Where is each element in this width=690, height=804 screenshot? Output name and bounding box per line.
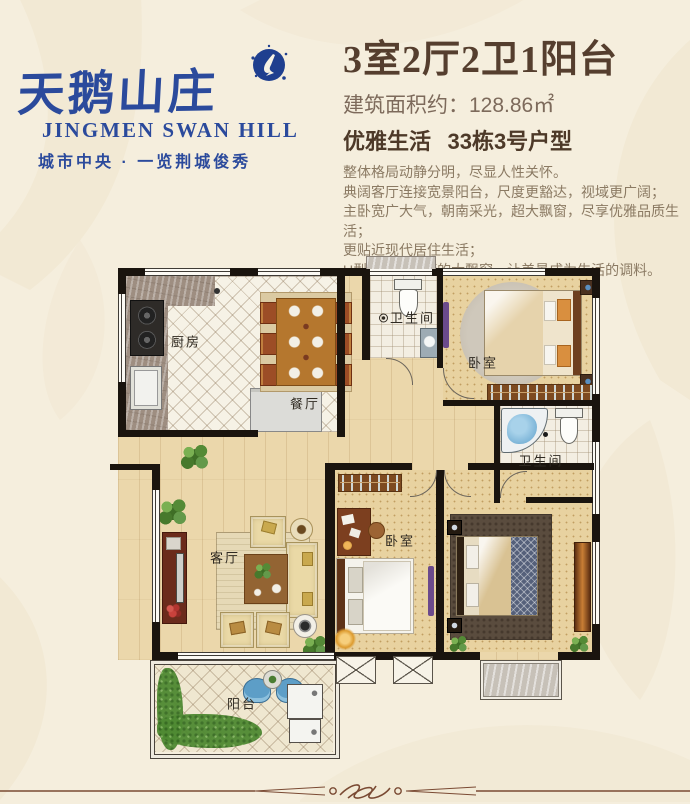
floor-plan: 厨房 餐厅 卫生间 卧室 卫生间 客厅 卧室 阳台: [110, 256, 606, 756]
lifestyle-label: 优雅生活: [343, 129, 431, 154]
wall: [118, 382, 126, 437]
wall: [337, 268, 345, 437]
wall: [362, 268, 370, 360]
brand-name-cn: 天鹅山庄: [16, 52, 220, 124]
window: [152, 490, 160, 622]
balcony-door: [178, 652, 334, 660]
wall: [494, 406, 500, 503]
plant: [178, 442, 212, 472]
kitchen-sink: [130, 366, 162, 410]
unit-type-row: 优雅生活 33栋3号户型: [343, 124, 683, 156]
television: [176, 553, 184, 603]
floor-drain: [543, 432, 548, 437]
blanket: [479, 537, 511, 615]
floor-drain: [214, 288, 220, 294]
nightstand: [447, 618, 462, 633]
wall: [558, 652, 600, 660]
window: [118, 294, 126, 382]
bathroom1-label: 卫生间: [379, 308, 435, 327]
wall: [325, 463, 412, 470]
window: [443, 268, 545, 276]
brand-logo: 天鹅山庄 JINGMEN SWAN HILL 城市中央 · 一览荆城俊秀: [14, 40, 334, 175]
bed: [456, 536, 538, 616]
pillow: [544, 345, 556, 365]
headboard: [457, 537, 464, 615]
window: [592, 298, 600, 394]
window: [592, 442, 600, 514]
paper: [349, 528, 361, 539]
desc-line: 主卧宽广大气，朝南采光，超大飘窗，尽享优雅品质生活；: [343, 202, 683, 241]
duvet: [363, 561, 411, 631]
floor-lamp: [334, 628, 356, 650]
wall: [526, 497, 593, 503]
bathtub-water: [507, 414, 537, 444]
wall: [437, 268, 443, 368]
window: [145, 268, 230, 276]
coffee-table: [244, 554, 288, 604]
brand-name-en: JINGMEN SWAN HILL: [42, 118, 299, 143]
unit-number: 33栋3号户型: [447, 129, 572, 154]
wall: [152, 652, 178, 660]
wall: [592, 394, 600, 442]
plant: [448, 634, 469, 654]
bed: [484, 290, 582, 376]
pillow: [544, 301, 556, 321]
pillow: [348, 567, 363, 593]
flue-shaft: [393, 656, 433, 684]
sofa-pillow: [302, 592, 313, 606]
balcony-table: [263, 670, 282, 689]
desk-chair: [368, 522, 385, 539]
entry-pad: [366, 256, 436, 269]
balcony-label: 阳台: [227, 694, 257, 713]
desk: [337, 508, 371, 556]
desk-lamp: [343, 541, 352, 550]
swan-ink-icon: [246, 42, 292, 88]
dining-label: 餐厅: [290, 394, 320, 413]
washing-machine: [287, 684, 323, 719]
plant: [568, 634, 591, 654]
wall: [592, 514, 600, 542]
wardrobe: [338, 474, 402, 492]
sofa-pillow: [302, 552, 313, 566]
bed: [336, 558, 414, 634]
decor: [166, 537, 181, 550]
toilet: [560, 417, 578, 444]
desc-line: 整体格局动静分明，尽显人性关怀。: [343, 163, 683, 183]
area-row: 建筑面积约：128.86㎡: [343, 89, 683, 119]
unit-header: 3室2厅2卫1阳台 建筑面积约：128.86㎡ 优雅生活 33栋3号户型 整体格…: [343, 28, 683, 280]
wall: [443, 400, 593, 406]
dining-table: [276, 298, 336, 386]
plant: [156, 496, 190, 528]
footer-flourish: [0, 778, 690, 804]
table-plant: [253, 561, 273, 581]
window: [258, 268, 320, 276]
ceiling-light-icon: [379, 314, 388, 323]
wall: [118, 268, 126, 294]
bedroom2-label: 卧室: [385, 531, 415, 550]
poster-page: { "brand": { "name_cn": "天鹅山庄", "name_en…: [0, 0, 690, 802]
paper: [341, 514, 355, 525]
pillow: [348, 599, 363, 625]
wall: [118, 430, 258, 437]
area-value: 128.86㎡: [469, 94, 554, 117]
bay-window: [480, 660, 562, 700]
pillow: [557, 345, 571, 367]
wall: [436, 470, 444, 652]
bathroom2-label: 卫生间: [518, 451, 563, 470]
wall: [325, 470, 335, 652]
side-table: [290, 518, 313, 541]
wall: [230, 268, 258, 276]
area-label: 建筑面积约：: [343, 94, 469, 117]
window: [368, 268, 432, 276]
window: [592, 542, 600, 624]
headboard: [337, 559, 345, 633]
pillow: [557, 299, 571, 321]
tv-stand: [162, 532, 187, 624]
kitchen-label: 厨房: [171, 332, 201, 351]
wall: [592, 268, 600, 298]
balcony-plants: [157, 714, 262, 748]
bedroom1-label: 卧室: [468, 353, 498, 372]
pillow: [466, 583, 479, 607]
flower-vase: [165, 603, 182, 619]
utility-box: [289, 719, 321, 743]
pillow: [466, 545, 479, 569]
flue-shaft: [336, 656, 376, 684]
nightstand: [447, 520, 462, 535]
wall: [152, 470, 160, 490]
quilt: [511, 537, 537, 615]
stove: [130, 300, 164, 356]
tv-panel: [443, 302, 449, 348]
living-label: 客厅: [210, 548, 240, 567]
unit-title: 3室2厅2卫1阳台: [343, 28, 683, 83]
tv-panel: [428, 566, 434, 616]
tv-cabinet: [574, 542, 591, 632]
headboard: [573, 291, 581, 375]
desc-line: 典阔客厅连接宽景阳台，尺度更豁达，视域更广阔；: [343, 183, 683, 203]
sofa-pillow: [229, 621, 246, 635]
brand-tagline: 城市中央 · 一览荆城俊秀: [38, 148, 251, 172]
